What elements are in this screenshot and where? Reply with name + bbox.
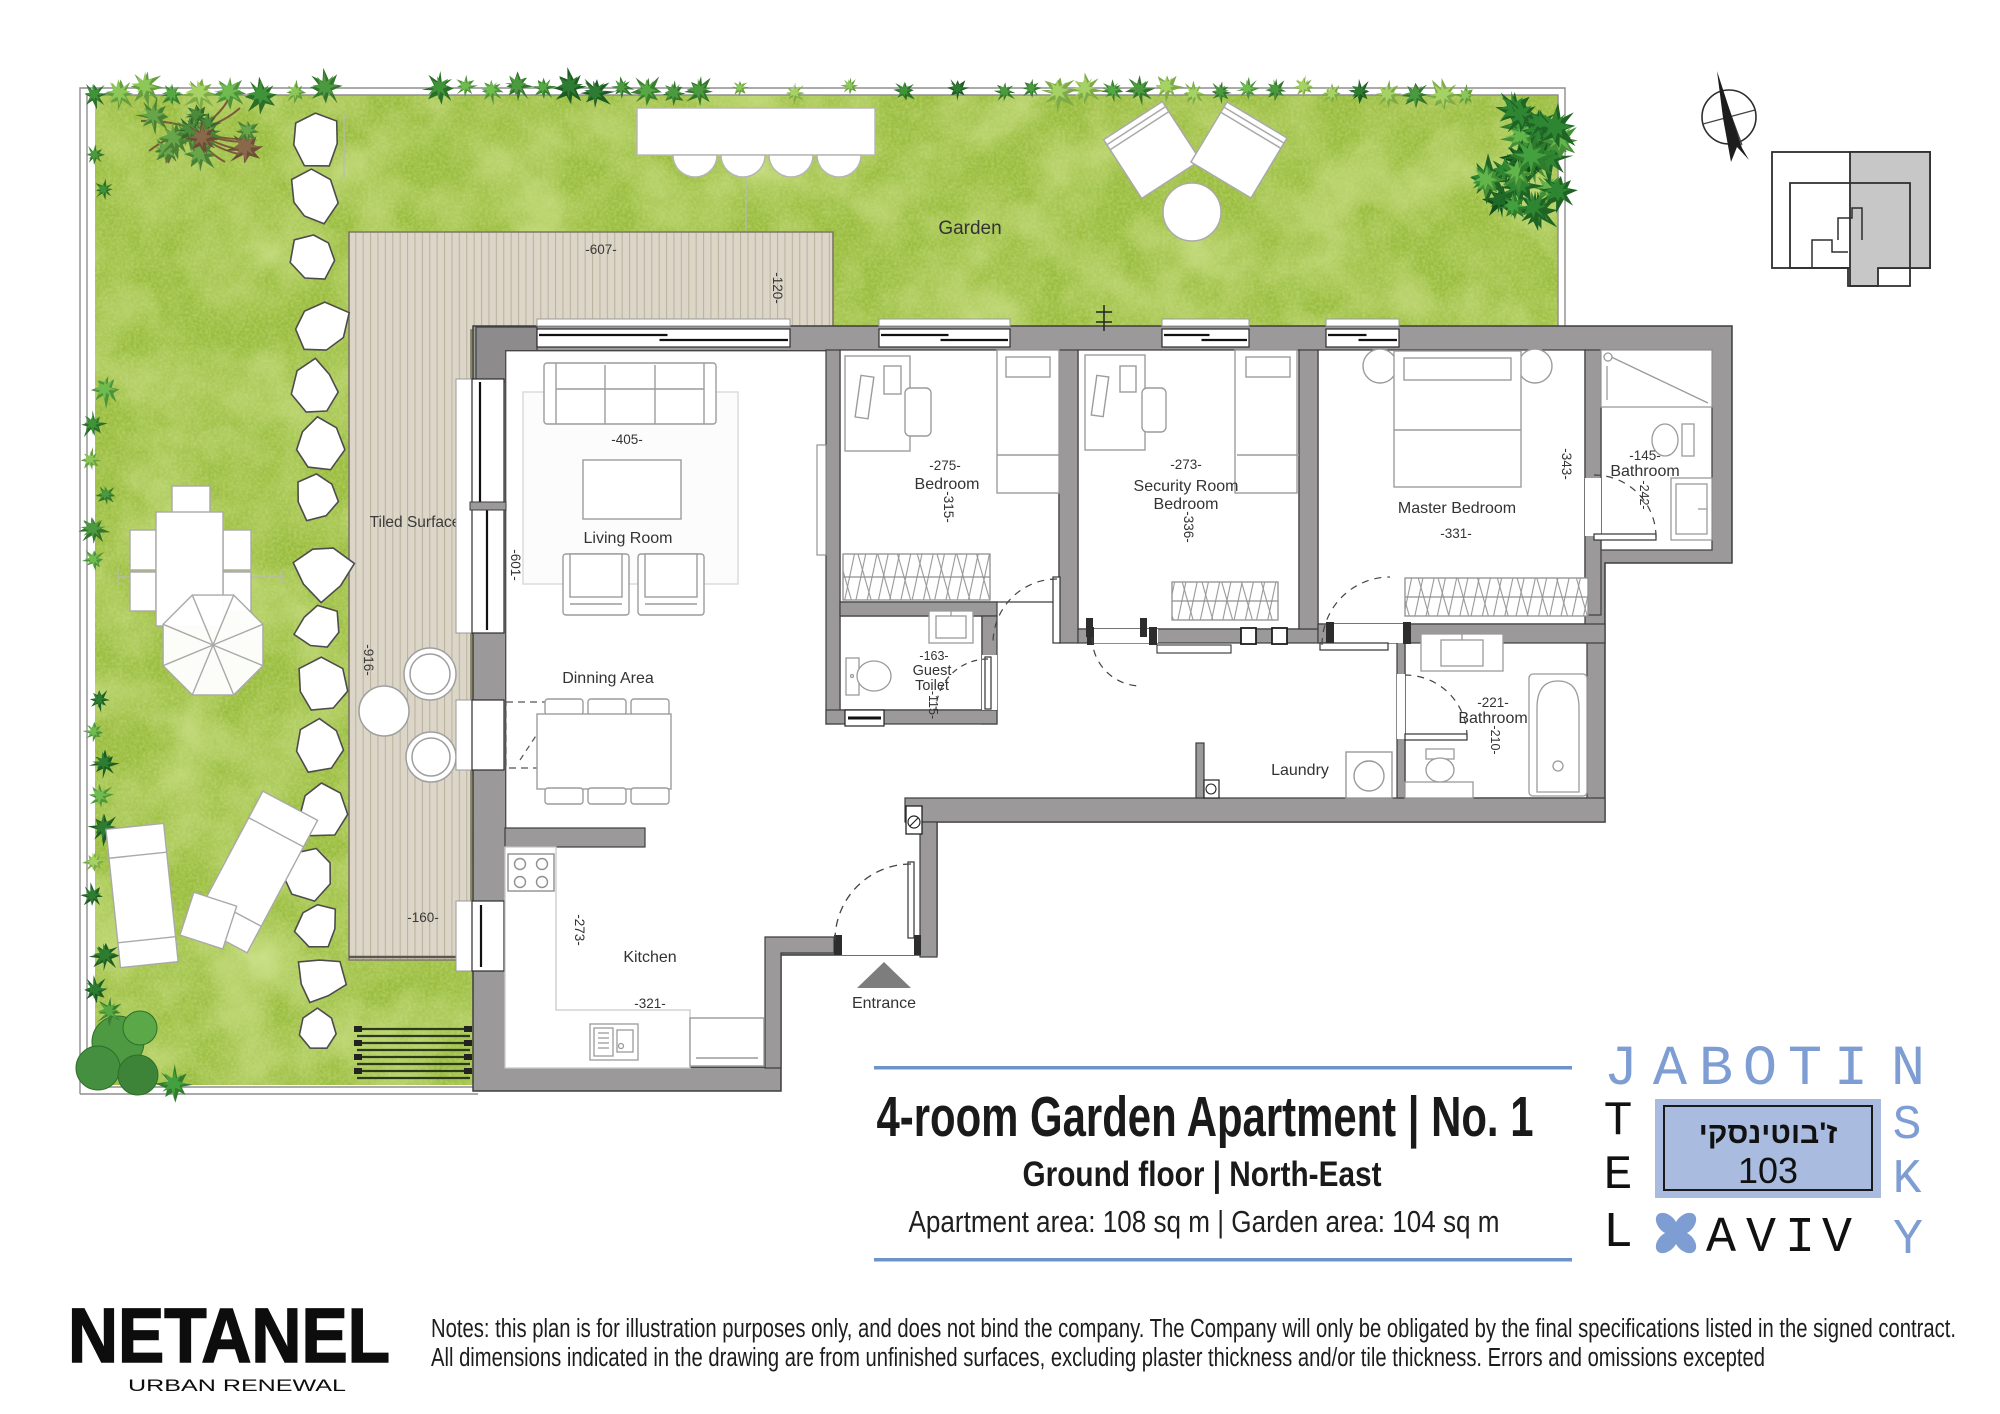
svg-text:-242-: -242- bbox=[1637, 480, 1651, 509]
svg-text:-115-: -115- bbox=[926, 691, 940, 719]
svg-text:Ground floor | North-East: Ground floor | North-East bbox=[1023, 1155, 1382, 1194]
svg-text:I: I bbox=[1785, 1210, 1815, 1267]
svg-text:Notes: this plan is for illust: Notes: this plan is for illustration pur… bbox=[431, 1315, 1956, 1343]
svg-text:Guest: Guest bbox=[913, 663, 952, 679]
svg-text:URBAN RENEWAL: URBAN RENEWAL bbox=[128, 1376, 346, 1395]
svg-text:-160-: -160- bbox=[407, 910, 439, 925]
svg-text:-275-: -275- bbox=[929, 458, 961, 473]
svg-text:I: I bbox=[1834, 1038, 1868, 1102]
svg-text:V: V bbox=[1822, 1210, 1852, 1267]
svg-text:Laundry: Laundry bbox=[1271, 762, 1329, 779]
svg-text:NETANEL: NETANEL bbox=[68, 1293, 390, 1379]
svg-text:E: E bbox=[1604, 1149, 1633, 1203]
svg-text:T: T bbox=[1788, 1038, 1822, 1102]
svg-text:Living Room: Living Room bbox=[584, 530, 673, 547]
svg-text:Entrance: Entrance bbox=[852, 995, 916, 1012]
svg-text:S: S bbox=[1893, 1099, 1922, 1153]
svg-text:Tiled Surface: Tiled Surface bbox=[370, 514, 461, 531]
svg-text:-120-: -120- bbox=[770, 272, 785, 304]
svg-text:103: 103 bbox=[1738, 1150, 1798, 1191]
svg-text:-607-: -607- bbox=[585, 242, 617, 257]
svg-text:B: B bbox=[1699, 1038, 1733, 1102]
svg-text:-315-: -315- bbox=[941, 491, 956, 523]
svg-text:ז'בוטינסקי: ז'בוטינסקי bbox=[1699, 1117, 1838, 1150]
svg-text:Garden: Garden bbox=[938, 218, 1001, 239]
svg-text:-163-: -163- bbox=[919, 649, 948, 663]
svg-text:K: K bbox=[1893, 1153, 1922, 1207]
svg-text:N: N bbox=[1891, 1038, 1925, 1102]
svg-text:-331-: -331- bbox=[1440, 526, 1472, 541]
svg-text:-221-: -221- bbox=[1477, 695, 1509, 710]
svg-text:-601-: -601- bbox=[508, 549, 523, 581]
svg-text:4-room Garden Apartment | No.: 4-room Garden Apartment | No. 1 bbox=[877, 1085, 1534, 1149]
svg-text:-343-: -343- bbox=[1559, 448, 1574, 480]
svg-text:Dinning Area: Dinning Area bbox=[562, 670, 654, 687]
svg-text:All dimensions indicated in th: All dimensions indicated in the drawing … bbox=[431, 1344, 1765, 1372]
svg-text:V: V bbox=[1746, 1210, 1776, 1267]
svg-text:Apartment area: 108 sq m | Gar: Apartment area: 108 sq m | Garden area: … bbox=[909, 1204, 1500, 1239]
svg-text:-405-: -405- bbox=[611, 432, 643, 447]
svg-text:Y: Y bbox=[1893, 1212, 1923, 1269]
svg-text:Bathroom: Bathroom bbox=[1610, 463, 1679, 480]
svg-text:L: L bbox=[1603, 1205, 1633, 1262]
svg-text:-321-: -321- bbox=[634, 996, 666, 1011]
svg-text:-210-: -210- bbox=[1488, 725, 1502, 754]
svg-text:J: J bbox=[1604, 1038, 1638, 1102]
svg-text:A: A bbox=[1653, 1038, 1688, 1102]
svg-text:Master Bedroom: Master Bedroom bbox=[1398, 500, 1516, 517]
svg-text:-916-: -916- bbox=[361, 644, 376, 676]
svg-text:T: T bbox=[1604, 1095, 1633, 1149]
svg-text:-273-: -273- bbox=[572, 914, 587, 946]
svg-text:O: O bbox=[1743, 1038, 1777, 1102]
svg-text:-273-: -273- bbox=[1170, 457, 1202, 472]
svg-text:Security Room: Security Room bbox=[1134, 478, 1239, 495]
svg-text:-336-: -336- bbox=[1181, 511, 1196, 543]
svg-text:A: A bbox=[1706, 1210, 1736, 1267]
svg-text:Kitchen: Kitchen bbox=[623, 949, 676, 966]
svg-text:-145-: -145- bbox=[1629, 448, 1661, 463]
